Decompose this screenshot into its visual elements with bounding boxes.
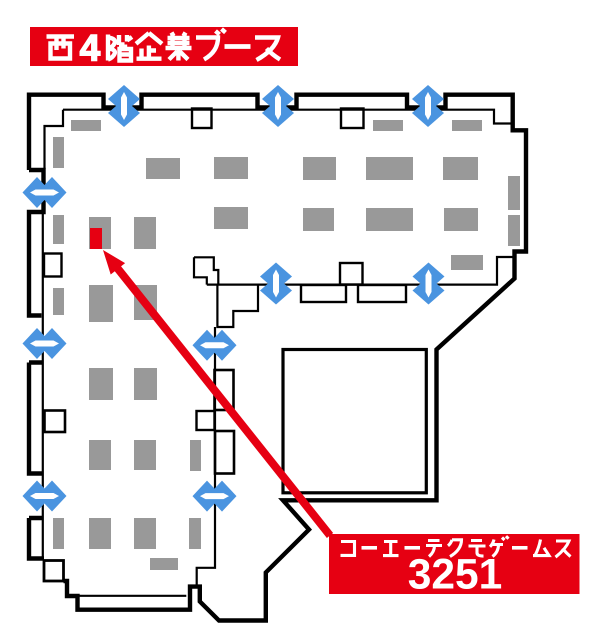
svg-text:3251: 3251 bbox=[408, 552, 503, 599]
svg-text:4: 4 bbox=[80, 28, 101, 69]
